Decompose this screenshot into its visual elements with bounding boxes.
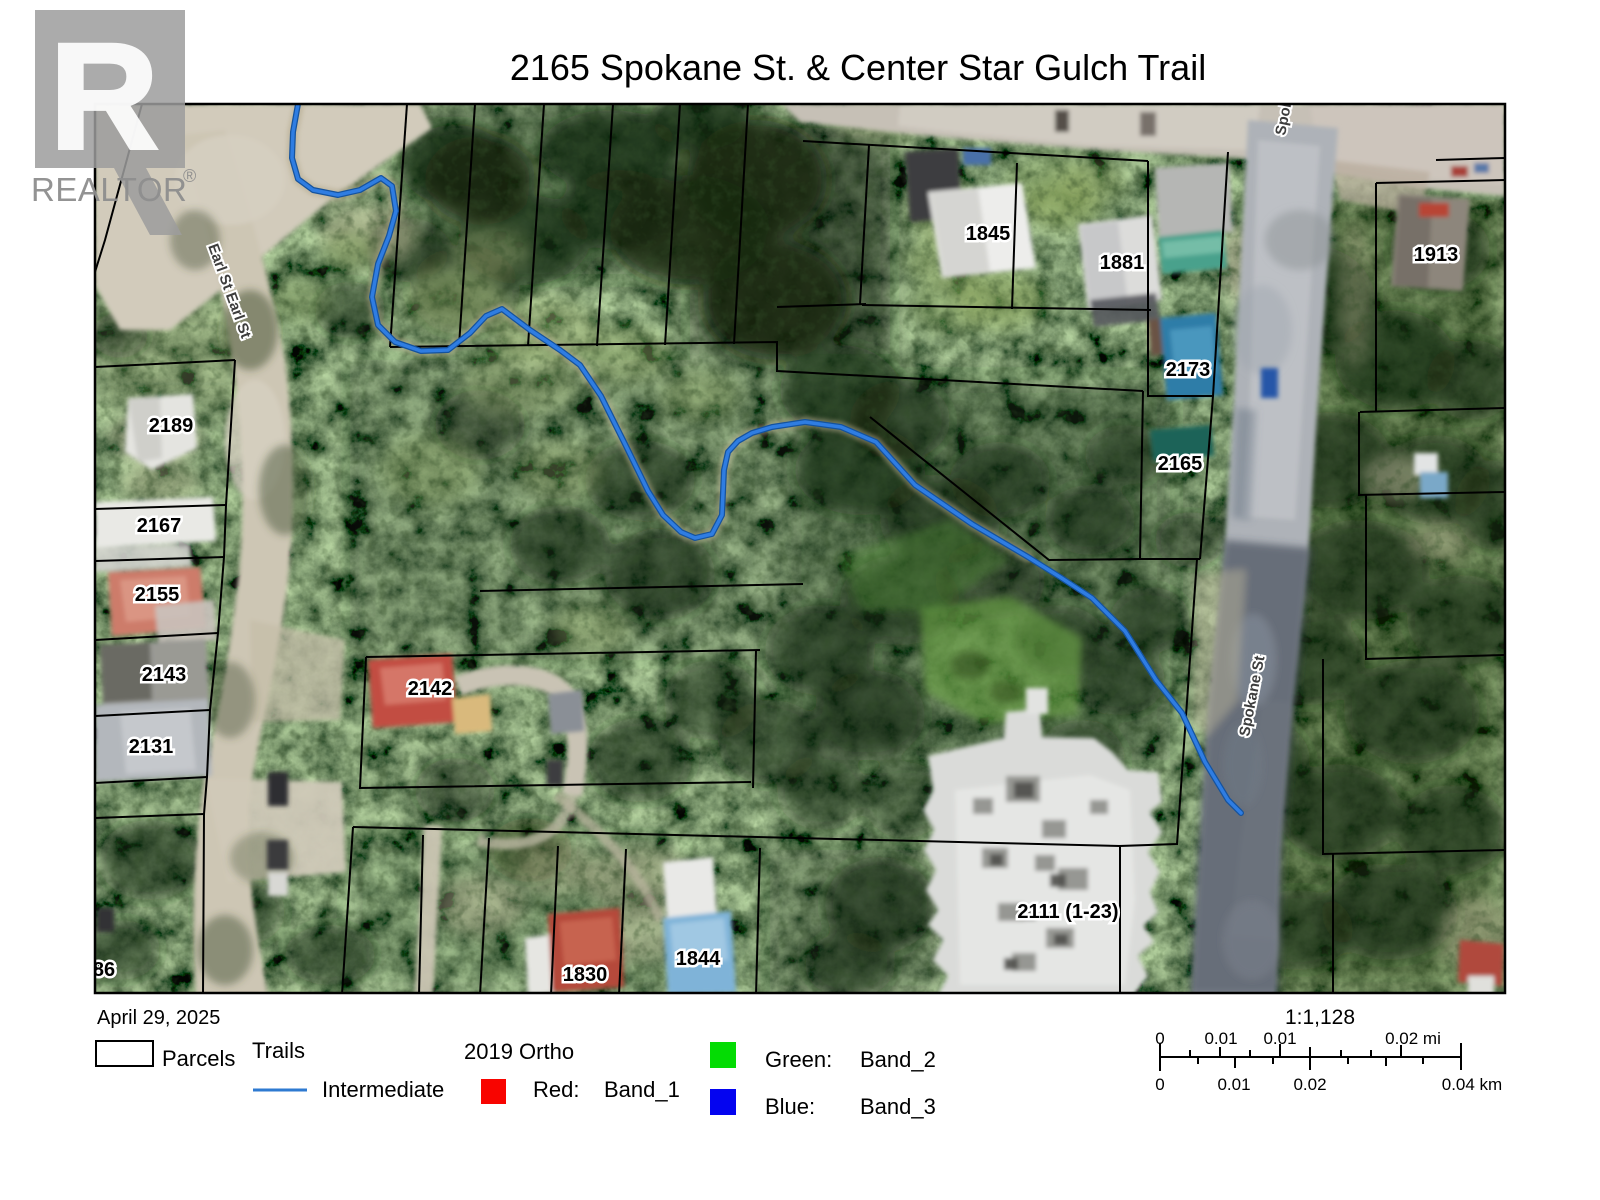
svg-text:2143: 2143 <box>142 664 187 686</box>
svg-text:0: 0 <box>1155 1075 1164 1094</box>
svg-text:1830: 1830 <box>563 964 608 986</box>
svg-text:Intermediate: Intermediate <box>322 1077 444 1102</box>
svg-text:2167: 2167 <box>137 515 182 537</box>
svg-text:Green:: Green: <box>765 1047 832 1072</box>
svg-text:2019 Ortho: 2019 Ortho <box>464 1039 574 1064</box>
svg-text:1881: 1881 <box>1100 252 1145 274</box>
svg-text:April 29, 2025: April 29, 2025 <box>97 1007 220 1029</box>
svg-text:1913: 1913 <box>1414 244 1459 266</box>
svg-text:0: 0 <box>1155 1029 1164 1048</box>
svg-text:0.01: 0.01 <box>1217 1075 1250 1094</box>
svg-text:Band_3: Band_3 <box>860 1094 936 1119</box>
svg-text:2173: 2173 <box>1166 359 1211 381</box>
svg-text:0.01: 0.01 <box>1263 1029 1296 1048</box>
svg-text:2142: 2142 <box>408 678 453 700</box>
svg-text:Parcels: Parcels <box>162 1046 235 1071</box>
svg-text:0.01: 0.01 <box>1204 1029 1237 1048</box>
svg-text:®: ® <box>183 166 196 186</box>
svg-text:2131: 2131 <box>129 736 174 758</box>
svg-text:R: R <box>50 12 158 180</box>
svg-text:REALTOR: REALTOR <box>31 171 187 208</box>
svg-text:1844: 1844 <box>676 948 721 970</box>
svg-text:2189: 2189 <box>149 415 194 437</box>
svg-text:0.02: 0.02 <box>1293 1075 1326 1094</box>
svg-text:2165 Spokane St. & Center Star: 2165 Spokane St. & Center Star Gulch Tra… <box>510 47 1206 88</box>
svg-text:1:1,128: 1:1,128 <box>1285 1006 1355 1029</box>
svg-text:2165: 2165 <box>1158 453 1203 475</box>
svg-text:Trails: Trails <box>252 1038 305 1063</box>
svg-text:Band_1: Band_1 <box>604 1077 680 1102</box>
svg-text:0.04 km: 0.04 km <box>1442 1075 1502 1094</box>
svg-text:2155: 2155 <box>135 584 180 606</box>
svg-text:0.02 mi: 0.02 mi <box>1385 1029 1441 1048</box>
svg-text:1845: 1845 <box>966 223 1011 245</box>
svg-text:Red:: Red: <box>533 1077 579 1102</box>
svg-text:2111 (1-23): 2111 (1-23) <box>1017 901 1118 923</box>
svg-text:Band_2: Band_2 <box>860 1047 936 1072</box>
svg-text:Blue:: Blue: <box>765 1094 815 1119</box>
